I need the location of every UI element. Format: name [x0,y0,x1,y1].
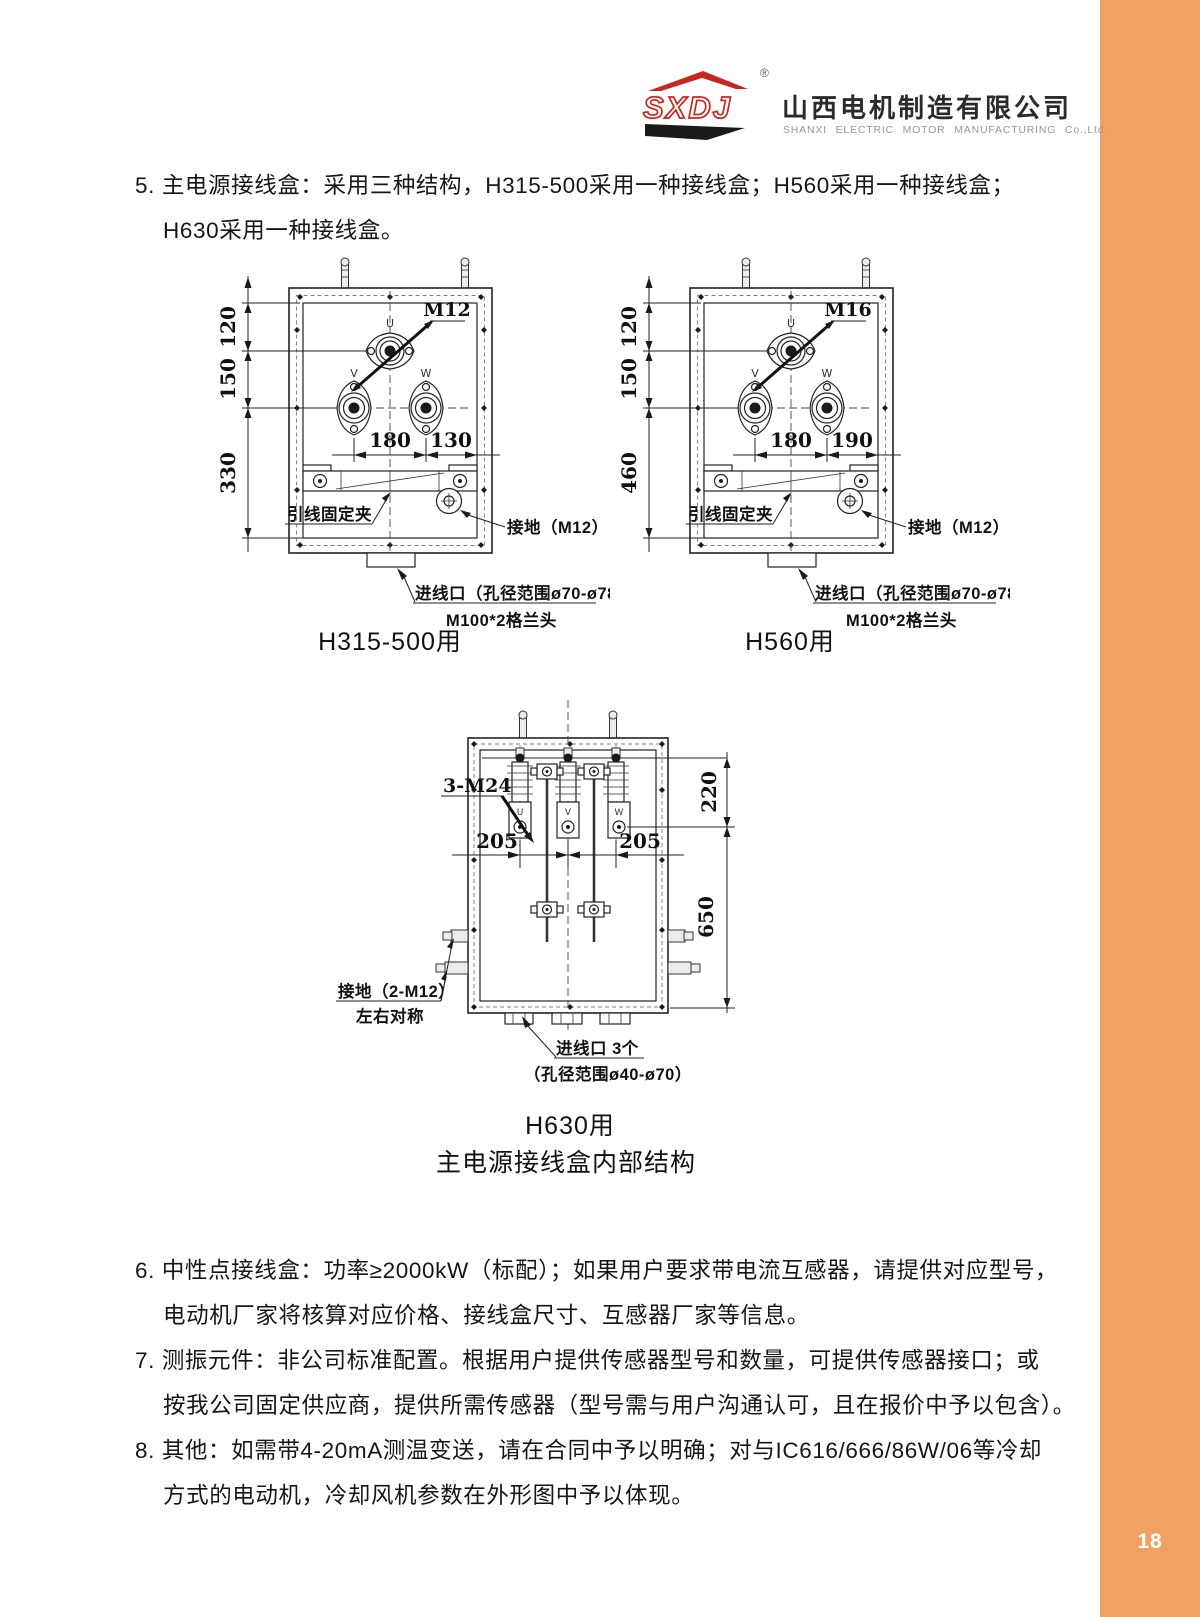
ground-terminal [838,489,863,514]
terminal-u-label: U [386,317,394,330]
terminal-u-label: U [787,317,795,330]
bolt-callout-label: 3-M24 [443,775,512,797]
terminal-v-label: V [565,808,572,818]
terminal-v-label: V [350,367,358,380]
dim-220: 220 [697,771,721,813]
note-item6-line1: 6. 中性点接线盒：功率≥2000kW（标配）；如果用户要求带电流互感器，请提供… [135,1248,1076,1293]
top-bolt-right [609,711,617,738]
page-number: 18 [1100,1530,1200,1554]
ground-label: 接地（M12） [908,517,1010,537]
diagram-h630: U V W [320,690,760,1090]
clamp-label: 引线固定夹 [287,504,372,524]
dim-650: 650 [694,896,718,938]
company-name-cn: 山西电机制造有限公司 [782,88,1072,125]
ground-label-2: 左右对称 [356,1006,424,1026]
caption-h315-500: H315-500用 [290,622,490,658]
dim-150: 150 [216,358,240,400]
inlet-callout: 进线口 3个 （孔径范围ø40-ø70） [522,1016,692,1084]
note-item8-line2: 方式的电动机，冷却风机参数在外形图中予以体现。 [135,1473,1076,1518]
clamp-label: 引线固定夹 [688,504,773,524]
logo-swoosh-shape [645,124,745,140]
top-bolt-left [341,258,349,288]
note-item6-line2: 电动机厂家将核算对应价格、接线盒尺寸、互感器厂家等信息。 [135,1293,1076,1338]
inlet-label-1: 进线口 3个 [556,1038,639,1058]
cable-inlet: 进线口（孔径范围ø70-ø78） M100*2格兰头 [367,553,610,630]
figure-caption: 主电源接线盒内部结构 [366,1143,766,1179]
dim-205-right: 205 [619,829,661,853]
inlet-label-1: 进线口（孔径范围ø70-ø78） [815,583,1010,603]
dim-180: 180 [770,428,812,452]
dim-120: 120 [617,306,641,348]
dim-190: 190 [831,428,873,452]
accent-side-strip [1100,0,1200,1617]
terminal-w-label: W [822,367,833,380]
diagram-h315-500: U V W M12 1 [200,240,610,670]
dim-330: 330 [216,452,240,494]
ground-callout: 接地（2-M12） 左右对称 [336,938,455,1026]
manual-page: { "page": { "number": "18", "accent_colo… [0,0,1200,1617]
top-bolt-right [461,258,469,288]
notes-block: 6. 中性点接线盒：功率≥2000kW（标配）；如果用户要求带电流互感器，请提供… [135,1248,1076,1518]
cable-inlet: 进线口（孔径范围ø70-ø78） M100*2格兰头 [768,553,1010,630]
company-name-en: SHANXI ELECTRIC MOTOR MANUFACTURING Co.,… [783,124,1108,136]
logo-abbr-text: SXDJ [643,90,732,125]
note-item8-line1: 8. 其他：如需带4-20mA测温变送，请在合同中予以明确；对与IC616/66… [135,1428,1076,1473]
terminal-v-label: V [751,367,759,380]
inlet-label-2: （孔径范围ø40-ø70） [524,1064,692,1084]
dim-120: 120 [216,306,240,348]
dim-180: 180 [369,428,411,452]
bolt-callout-label: M16 [824,299,871,321]
dim-150: 150 [617,358,641,400]
dim-205-left: 205 [476,829,518,853]
note-item5-line1: 5. 主电源接线盒：采用三种结构，H315-500采用一种接线盒；H560采用一… [135,163,1015,208]
note-item7-line2: 按我公司固定供应商，提供所需传感器（型号需与用户沟通认可，且在报价中予以包含）。 [135,1383,1076,1428]
note-item7-line1: 7. 测振元件：非公司标准配置。根据用户提供传感器型号和数量，可提供传感器接口；… [135,1338,1076,1383]
caption-h560: H560用 [690,622,890,658]
ground-label-1: 接地（2-M12） [338,981,455,1001]
bolt-callout-label: M12 [423,299,470,321]
terminal-w-label: W [615,808,624,818]
dim-460: 460 [617,452,641,494]
dim-130: 130 [430,428,472,452]
top-bolt-left [519,711,527,738]
top-bolt-right [862,258,870,288]
diagram-h560: U V W M16 120 15 [580,240,1010,670]
top-bolt-left [742,258,750,288]
logo-emblem: SXDJ [640,68,758,144]
company-logo: SXDJ ® 山西电机制造有限公司 SHANXI ELECTRIC MOTOR … [640,66,1100,146]
caption-h630: H630用 [470,1106,670,1142]
terminal-w-label: W [421,367,432,380]
logo-roof-shape [648,71,748,91]
ground-terminal [437,489,462,514]
registered-mark: ® [760,66,769,80]
terminal-u-label: U [517,808,524,818]
